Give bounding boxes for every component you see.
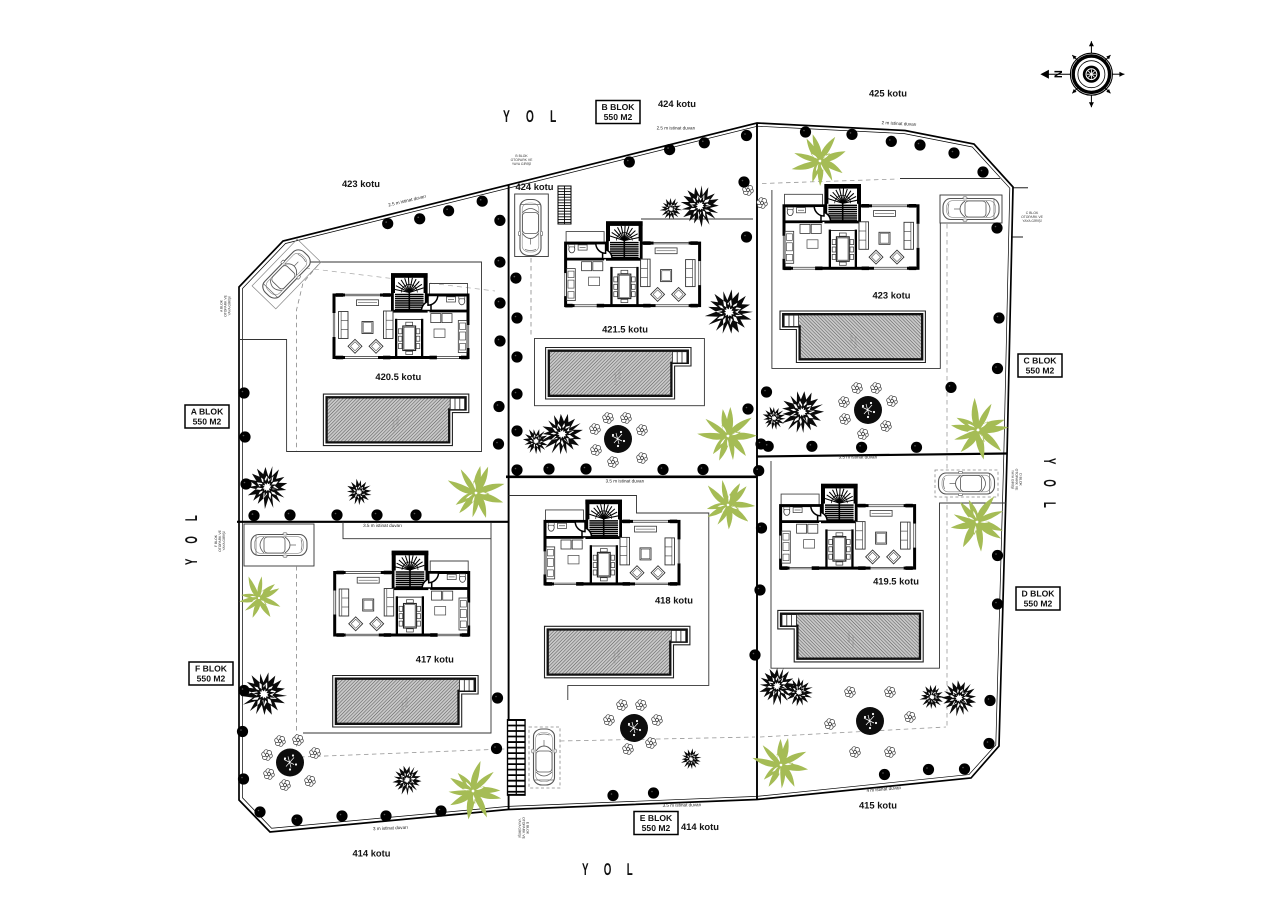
svg-text:3.5 m istinat duvarı: 3.5 m istinat duvarı	[606, 479, 645, 484]
svg-text:Y O L: Y O L	[503, 107, 563, 126]
svg-text:Y O L: Y O L	[182, 509, 201, 565]
svg-text:415 kotu: 415 kotu	[859, 800, 897, 811]
svg-text:3.5 m istinat duvarı: 3.5 m istinat duvarı	[839, 455, 878, 460]
svg-text:424 kotu: 424 kotu	[515, 181, 553, 192]
svg-text:N: N	[1053, 70, 1065, 78]
svg-text:550 M2: 550 M2	[604, 112, 633, 122]
svg-text:418 kotu: 418 kotu	[655, 595, 693, 606]
svg-text:D BLOK: D BLOK	[1022, 589, 1056, 599]
svg-text:2 m istinat duvarı: 2 m istinat duvarı	[881, 120, 916, 127]
svg-text:F BLOK: F BLOK	[195, 664, 228, 674]
svg-text:Y O L: Y O L	[1040, 458, 1059, 514]
svg-text:2.5 m istinat duvarı: 2.5 m istinat duvarı	[657, 126, 696, 131]
svg-text:421.5 kotu: 421.5 kotu	[602, 324, 648, 335]
svg-text:2.5 m istinat duvarı: 2.5 m istinat duvarı	[388, 194, 427, 208]
svg-text:550 M2: 550 M2	[1026, 365, 1055, 375]
svg-text:YAYA GİRİŞİ: YAYA GİRİŞİ	[228, 296, 232, 315]
svg-text:B BLOK: B BLOK	[602, 102, 636, 112]
svg-text:3.5 m istinat duvarı: 3.5 m istinat duvarı	[663, 802, 702, 808]
svg-text:C BLOK: C BLOK	[1024, 356, 1058, 366]
svg-text:550 M2: 550 M2	[193, 416, 222, 426]
svg-text:550 M2: 550 M2	[197, 673, 226, 683]
svg-text:YAYA GİRİŞİ: YAYA GİRİŞİ	[1011, 470, 1015, 489]
svg-text:YAYA GİRİŞİ: YAYA GİRİŞİ	[222, 531, 226, 550]
svg-text:Y O L: Y O L	[582, 860, 639, 879]
svg-text:YAYA GİRİŞİ: YAYA GİRİŞİ	[518, 818, 522, 837]
svg-text:423 kotu: 423 kotu	[872, 290, 910, 301]
svg-text:3 m istinat duvarı: 3 m istinat duvarı	[373, 825, 408, 832]
svg-text:417 kotu: 417 kotu	[416, 654, 454, 665]
svg-text:A BLOK: A BLOK	[191, 407, 224, 417]
svg-text:423 kotu: 423 kotu	[342, 178, 380, 189]
svg-text:YAYA GİRİŞİ: YAYA GİRİŞİ	[1022, 219, 1041, 223]
svg-text:3.5 m istinat duvarı: 3.5 m istinat duvarı	[363, 523, 402, 528]
svg-text:420.5 kotu: 420.5 kotu	[375, 371, 421, 382]
svg-text:424 kotu: 424 kotu	[658, 98, 696, 109]
svg-text:550 M2: 550 M2	[1024, 598, 1053, 608]
svg-text:550 M2: 550 M2	[642, 823, 671, 833]
svg-text:E BLOK: E BLOK	[640, 813, 673, 823]
svg-text:414 kotu: 414 kotu	[352, 848, 390, 859]
svg-text:414 kotu: 414 kotu	[681, 821, 719, 832]
svg-text:YAYA GİRİŞİ: YAYA GİRİŞİ	[512, 162, 531, 166]
svg-text:425 kotu: 425 kotu	[869, 88, 907, 99]
svg-text:419.5 kotu: 419.5 kotu	[873, 576, 919, 587]
